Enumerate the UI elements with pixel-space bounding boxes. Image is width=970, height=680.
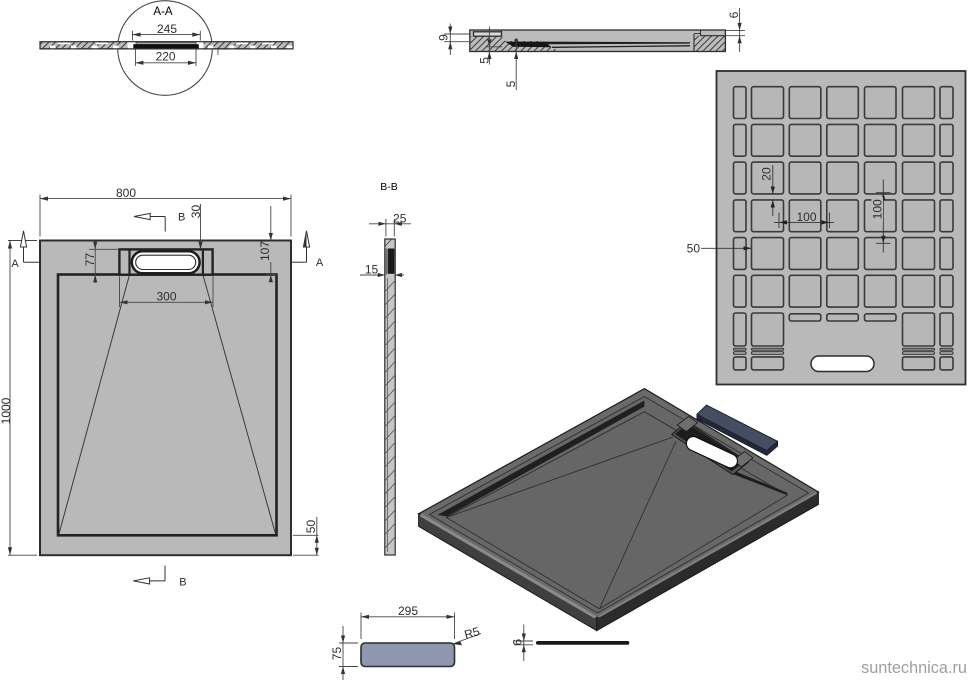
svg-text:50: 50 bbox=[687, 241, 701, 255]
svg-text:295: 295 bbox=[398, 604, 418, 618]
svg-text:220: 220 bbox=[156, 50, 176, 64]
svg-text:6: 6 bbox=[727, 11, 741, 18]
svg-text:300: 300 bbox=[156, 289, 176, 303]
svg-text:suntechnica.ru: suntechnica.ru bbox=[861, 659, 967, 677]
svg-text:A: A bbox=[316, 257, 324, 269]
svg-text:5: 5 bbox=[477, 57, 491, 64]
svg-text:245: 245 bbox=[157, 22, 177, 36]
svg-text:107: 107 bbox=[258, 241, 272, 261]
svg-text:100: 100 bbox=[796, 210, 816, 224]
svg-text:B: B bbox=[179, 576, 186, 588]
svg-text:800: 800 bbox=[116, 186, 136, 200]
svg-text:30: 30 bbox=[189, 205, 203, 219]
svg-text:20: 20 bbox=[759, 167, 773, 181]
svg-text:25: 25 bbox=[393, 211, 407, 225]
svg-text:77: 77 bbox=[83, 253, 97, 267]
svg-text:50: 50 bbox=[304, 520, 318, 534]
svg-text:B-B: B-B bbox=[380, 181, 398, 193]
svg-text:9: 9 bbox=[437, 34, 451, 41]
svg-text:A: A bbox=[11, 258, 19, 270]
svg-text:75: 75 bbox=[330, 647, 344, 661]
svg-text:A-A: A-A bbox=[153, 6, 173, 18]
svg-text:B: B bbox=[178, 212, 185, 224]
svg-text:1000: 1000 bbox=[0, 397, 13, 424]
svg-text:100: 100 bbox=[870, 199, 884, 219]
svg-text:6: 6 bbox=[511, 639, 525, 646]
svg-text:5: 5 bbox=[504, 80, 518, 87]
svg-text:15: 15 bbox=[365, 263, 379, 277]
